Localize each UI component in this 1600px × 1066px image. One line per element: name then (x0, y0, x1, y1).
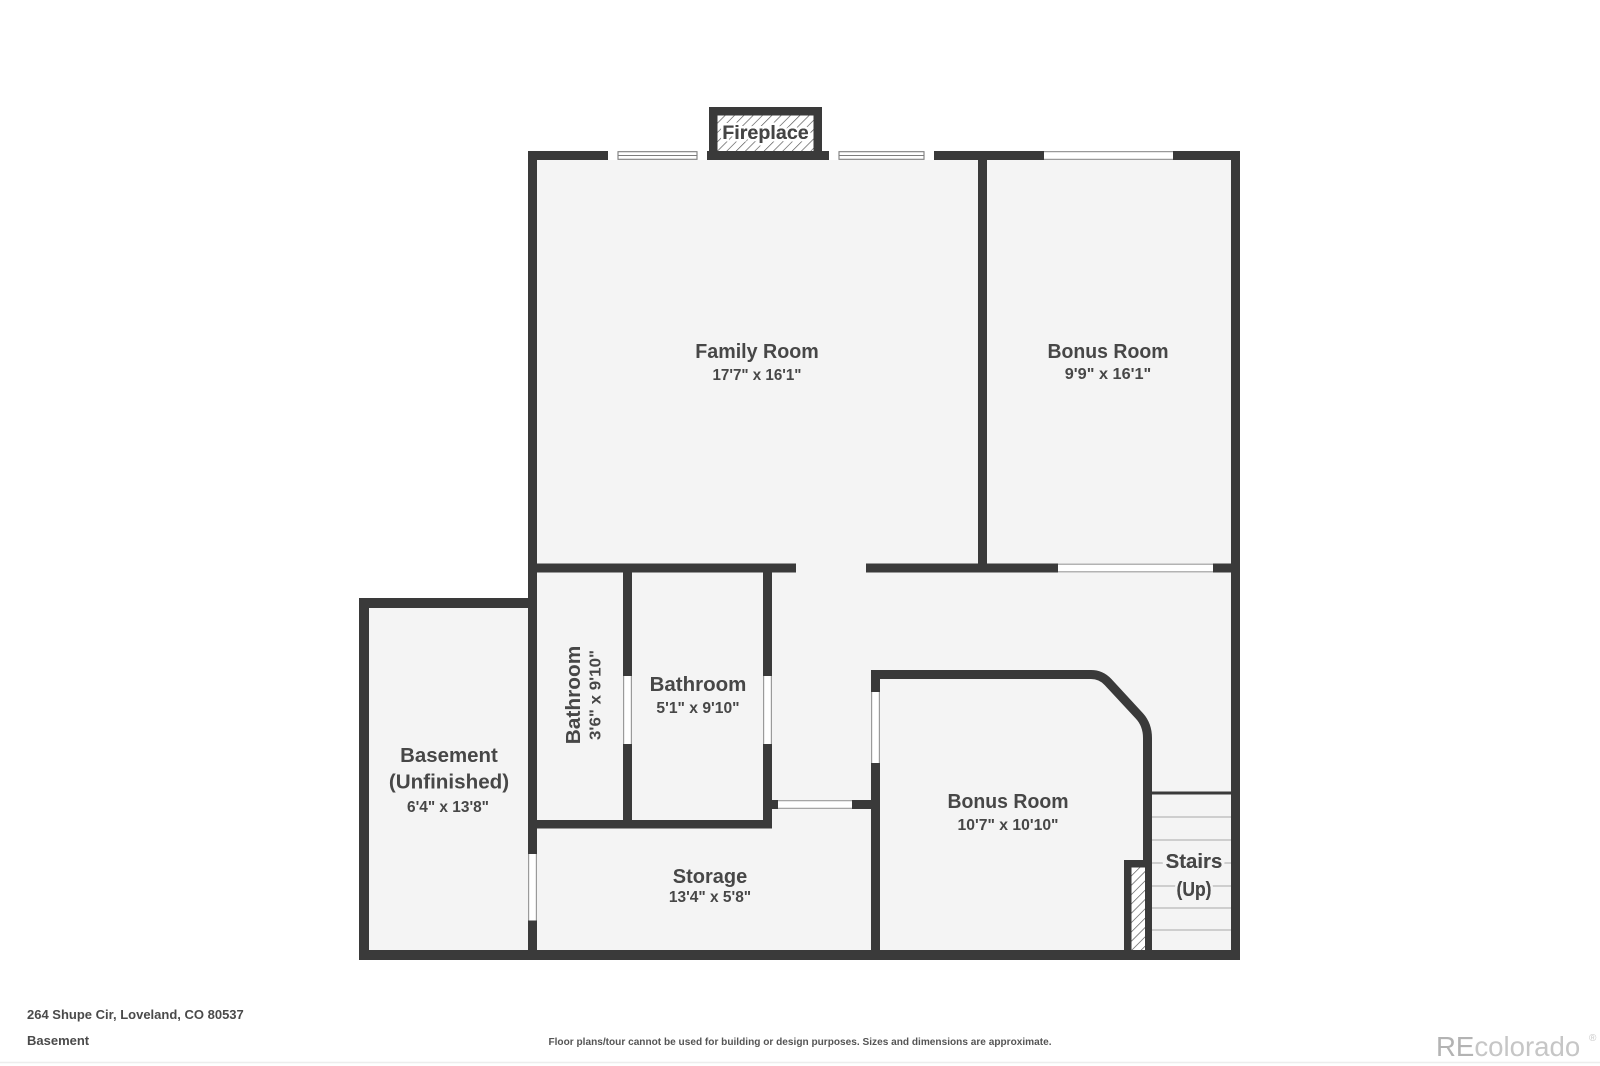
svg-text:Bonus Room: Bonus Room (1048, 341, 1169, 363)
svg-text:9'9" x 16'1": 9'9" x 16'1" (1065, 366, 1152, 383)
svg-text:(Unfinished): (Unfinished) (389, 772, 509, 794)
svg-text:REcolorado: REcolorado (1436, 1031, 1580, 1062)
svg-text:6'4" x 13'8": 6'4" x 13'8" (407, 799, 489, 816)
svg-text:Basement: Basement (27, 1033, 90, 1048)
svg-text:5'1" x 9'10": 5'1" x 9'10" (656, 700, 739, 717)
svg-text:10'7" x 10'10": 10'7" x 10'10" (958, 817, 1059, 834)
svg-text:Bonus Room: Bonus Room (948, 791, 1069, 813)
svg-text:17'7" x 16'1": 17'7" x 16'1" (713, 367, 802, 384)
svg-text:13'4" x 5'8": 13'4" x 5'8" (669, 889, 751, 906)
svg-text:Storage: Storage (673, 866, 747, 888)
svg-text:Stairs: Stairs (1166, 851, 1223, 873)
svg-text:Floor plans/tour cannot be use: Floor plans/tour cannot be used for buil… (548, 1037, 1051, 1048)
svg-text:3'6" x 9'10": 3'6" x 9'10" (588, 650, 605, 740)
svg-text:Bathroom: Bathroom (563, 646, 585, 745)
svg-text:Basement: Basement (400, 745, 498, 767)
svg-text:Fireplace: Fireplace (722, 122, 809, 144)
svg-text:Family Room: Family Room (695, 341, 819, 363)
svg-text:264 Shupe Cir, Loveland, CO 80: 264 Shupe Cir, Loveland, CO 80537 (27, 1007, 244, 1022)
svg-text:Bathroom: Bathroom (650, 674, 747, 696)
svg-text:(Up): (Up) (1177, 879, 1212, 901)
svg-text:®: ® (1589, 1033, 1597, 1044)
